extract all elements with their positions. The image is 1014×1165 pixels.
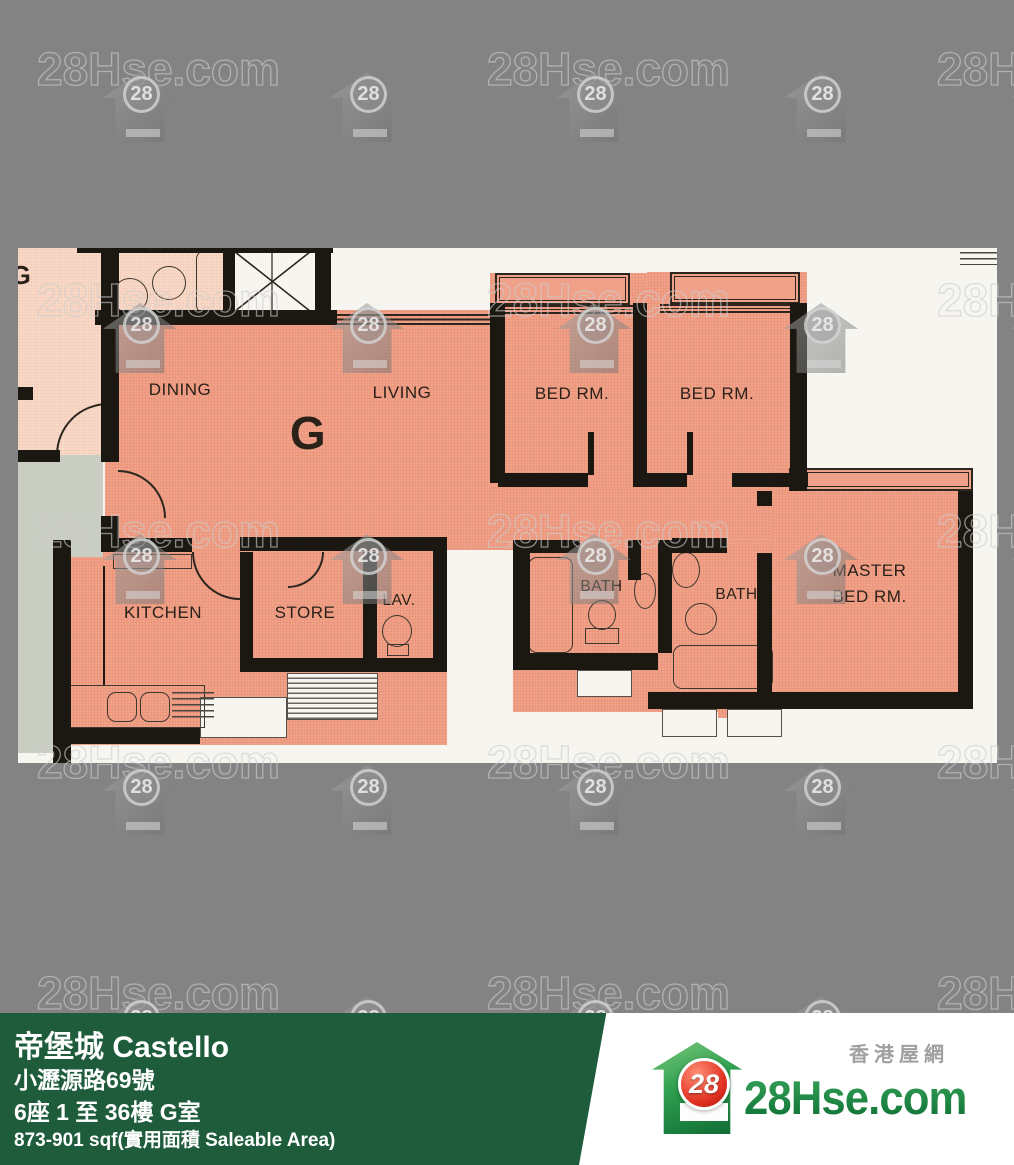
bedroom2-window: [660, 304, 790, 313]
wall-bath-stair-bottom: [95, 310, 337, 325]
wall-adj-left-stub: [18, 387, 33, 400]
watermark-28-badge: 28: [577, 769, 614, 806]
kitchen-drainer-icon: [172, 692, 214, 722]
bath2-label: BATH: [709, 586, 764, 604]
watermark-28-badge: 28: [123, 769, 160, 806]
wall-bath1-bottom: [513, 653, 658, 670]
watermark-house-body: [557, 765, 631, 835]
bed1-door-leaf: [588, 432, 594, 475]
wall-stair-left: [223, 248, 235, 315]
lav-toilet-base-icon: [387, 644, 409, 656]
bedroom1-label: BED RM.: [522, 384, 622, 404]
adjacent-basin2-icon: [152, 266, 186, 300]
living-window: [323, 314, 490, 325]
wall-bed1-left: [490, 303, 505, 483]
lobby-strip: [18, 548, 53, 753]
28hse-logo-text: 28Hse.com: [744, 1070, 966, 1125]
floor-plan: G BATH DINING G LIVING BED RM. BED RM. M…: [18, 248, 997, 763]
adjacent-bath-label: BATH: [125, 248, 215, 255]
wall-stair-right: [315, 248, 331, 325]
watermark-house-icon: 28: [557, 765, 631, 835]
watermark-house-base: [580, 822, 614, 830]
bed2-door-leaf: [687, 432, 693, 475]
bath1-label: BATH: [574, 578, 629, 596]
watermark-house-body: [330, 765, 404, 835]
lav-toilet-bowl-icon: [382, 615, 412, 647]
watermark-28-badge: 28: [350, 769, 387, 806]
wall-bath1-left: [513, 540, 530, 670]
watermark-house-body: [784, 765, 858, 835]
wall-dining-kitchen: [105, 538, 192, 552]
watermark-house-icon: 28: [784, 765, 858, 835]
wall-kitchen-bottom: [60, 728, 200, 744]
wall-corridor-bottom: [240, 537, 447, 551]
bay-window-2: [670, 272, 800, 304]
wall-bath1-top: [530, 540, 580, 553]
master-bedroom-label: MASTER BED RM.: [807, 558, 932, 610]
watermark-house-base: [126, 129, 160, 137]
stair-cross-icon: [230, 248, 315, 315]
watermark-house-base: [353, 129, 387, 137]
master-line1: MASTER: [833, 561, 907, 580]
wall-bed2-bottom-b: [732, 473, 808, 487]
bedroom2-label: BED RM.: [667, 384, 767, 404]
wall-kitchen-store: [240, 552, 253, 658]
wall-bath-divider-stub: [628, 540, 641, 580]
lav-label: LAV.: [374, 592, 424, 610]
corner-window-lines: [960, 252, 997, 265]
watermark-house-body: [330, 72, 404, 142]
light-well: [447, 550, 513, 668]
screenshot-stage: G BATH DINING G LIVING BED RM. BED RM. M…: [0, 0, 1014, 1165]
kitchen-sink2-icon: [140, 692, 170, 722]
watermark-house-body: [557, 72, 631, 142]
store-label: STORE: [255, 603, 355, 623]
watermark-house-icon: 28: [557, 72, 631, 142]
wall-master-right: [958, 491, 973, 709]
watermark-house-icon: 28: [103, 72, 177, 142]
wall-master-door-stub: [757, 491, 772, 506]
bath1-toilet-bowl-icon: [588, 600, 616, 630]
site-name-chinese: 香港屋網: [849, 1038, 949, 1067]
watermark-text: 28Hse.com: [487, 966, 730, 1020]
dining-label: DINING: [130, 380, 230, 400]
kitchen-cabinet-icon: [113, 554, 192, 569]
bath2-toilet-icon: [672, 552, 700, 588]
watermark-house-base: [807, 129, 841, 137]
living-label: LIVING: [352, 383, 452, 403]
bath1-toilet-tank-icon: [585, 628, 619, 644]
watermark-28-badge: 28: [804, 769, 841, 806]
watermark-text: 28Hse.com: [37, 42, 280, 96]
ac-platform-2: [662, 709, 717, 737]
wall-bed2-right: [790, 303, 807, 491]
wall-adj-right-upper: [101, 248, 119, 462]
ac-platform-3: [727, 709, 782, 737]
estate-address: 小瀝源路69號: [14, 1061, 155, 1095]
watermark-house-body: [784, 72, 858, 142]
watermark-text: 28Hse.com: [487, 42, 730, 96]
watermark-28-badge: 28: [577, 76, 614, 113]
watermark-28-badge: 28: [123, 76, 160, 113]
kitchen-sink1-icon: [107, 692, 137, 722]
watermark-text: 28Hse.com: [37, 966, 280, 1020]
louvre-platform: [287, 673, 378, 720]
watermark-28-badge: 28: [350, 76, 387, 113]
estate-floors: 6座 1 至 36樓 G室: [14, 1093, 201, 1127]
watermark-house-icon: 28: [103, 765, 177, 835]
stairwell: [230, 248, 315, 315]
bedroom1-window: [505, 305, 633, 314]
unit-letter-label: G: [271, 406, 345, 460]
wall-bath2-bottom: [648, 692, 776, 709]
wall-master-left: [757, 553, 772, 692]
estate-title: 帝堡城 Castello: [14, 1022, 229, 1066]
bath2-basin-icon: [685, 603, 717, 635]
wall-bed1-bottom: [498, 473, 588, 487]
watermark-house-icon: 28: [784, 72, 858, 142]
ac-platform-1: [577, 670, 632, 697]
wall-lav-right: [433, 537, 447, 658]
watermark-house-icon: 28: [330, 72, 404, 142]
28-badge-icon: 28: [678, 1058, 730, 1110]
watermark-house-icon: 28: [330, 765, 404, 835]
watermark-house-base: [807, 822, 841, 830]
kitchen-counter-line: [103, 566, 105, 685]
wall-store-lav-bottom: [240, 658, 447, 672]
bath1-tub-icon: [528, 557, 573, 653]
wall-bed-partition: [633, 303, 647, 487]
watermark-28-badge: 28: [804, 76, 841, 113]
watermark-text: 28Hse.com: [937, 42, 1014, 96]
watermark-house-body: [103, 72, 177, 142]
bay-window-1: [495, 273, 630, 305]
watermark-house-base: [126, 822, 160, 830]
wall-lobby-stub: [18, 450, 60, 462]
kitchen-label: KITCHEN: [113, 603, 213, 623]
watermark-house-body: [103, 765, 177, 835]
wall-bed2-bottom-a: [647, 473, 687, 487]
wall-bath1-right: [658, 540, 672, 653]
estate-area: 873-901 sqf(實用面積 Saleable Area): [14, 1125, 335, 1152]
watermark-text: 28Hse.com: [937, 966, 1014, 1020]
wall-master-bottom: [758, 692, 973, 709]
master-bay-window: [789, 468, 973, 491]
watermark-house-base: [580, 129, 614, 137]
adjacent-unit-label: G: [18, 260, 36, 291]
wall-bath2-top: [672, 538, 727, 553]
master-line2: BED RM.: [832, 587, 906, 606]
watermark-house-base: [353, 822, 387, 830]
